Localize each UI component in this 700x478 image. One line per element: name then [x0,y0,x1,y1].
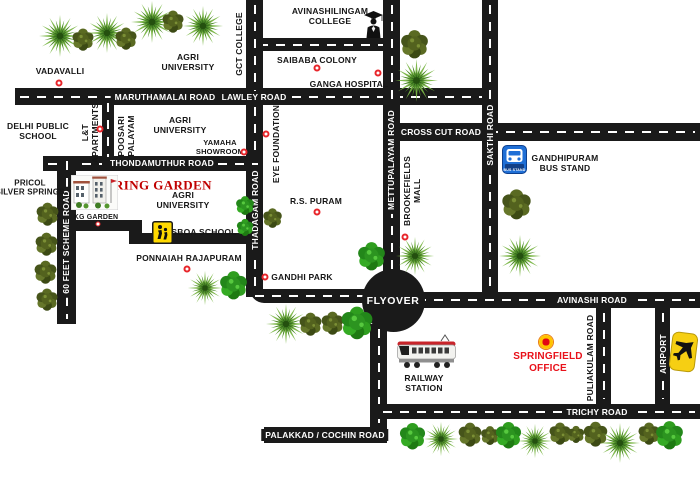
lnt-apartments-marker [97,126,104,133]
poosari-palayam-label: POOSARI PALAYAM [116,115,136,156]
cross-cut-road-label: CROSS CUT ROAD [397,126,485,138]
brookefields-mall-marker [402,234,409,241]
road-dashes [259,44,395,46]
agri-university-mid-label: AGRI UNIVERSITY [153,115,206,135]
lnt-apartments-label: L&T APARTMENTS [80,103,100,163]
mettupalayam-road-label: METTUPALAYAM ROAD [385,106,397,214]
palakkad-cochin-road-label: PALAKKAD / COCHIN ROAD [261,429,388,441]
lawley-road-label: LAWLEY ROAD [218,91,291,103]
sakthi-road-label: SAKTHI ROAD [484,100,496,169]
tree-icon [261,206,284,229]
springfield-office-marker [539,335,553,349]
eye-foundation-label: EYE FOUNDATION [271,105,281,183]
railway-station-road [370,324,387,443]
road-dashes [603,313,605,399]
tree-icon [32,258,59,285]
saibaba-colony-label: SAIBABA COLONY [277,55,357,65]
yamaha-showroom-label: YAMAHA SHOWROOM [196,139,244,157]
tree-icon [499,186,534,221]
rs-puram-marker [314,209,321,216]
avinashi-road-label: AVINASHI ROAD [553,294,631,306]
tree-icon [355,239,388,272]
gandhipuram-bus-stand-label: GANDHIPURAM BUS STAND [532,153,599,173]
tree-icon [217,268,250,301]
tree-icon [234,194,256,216]
tree-icon [33,230,60,257]
puliakulam-road [596,308,611,404]
gandhi-park-marker [262,274,269,281]
road-dashes [107,103,109,161]
ponnaiah-rajapuram-marker [184,266,191,273]
puliakulam-road-label: PULIAKULAM ROAD [585,315,595,402]
avinashilingam-college-road [254,38,400,51]
ganga-hospital-marker [375,70,382,77]
school-crossing-icon [152,221,173,244]
railway-station-label: RAILWAY STATION [404,373,443,393]
road-dashes [378,329,380,438]
airport-road-label: AIRPORT [657,330,669,378]
ganga-hospital-label: GANGA HOSPITAL [310,79,389,89]
yamaha-showroom-marker [241,149,248,156]
kg-garden-marker [96,222,101,227]
tree-icon [182,5,224,47]
gct-college-label: GCT COLLEGE [234,12,244,76]
tree-icon [423,421,459,457]
spring-garden-photo [71,175,118,210]
maruthamalai-road-label: MARUTHAMALAI ROAD [111,91,220,103]
delhi-public-school-label: DELHI PUBLIC SCHOOL [7,121,69,141]
tree-icon [235,217,255,237]
tree-icon [395,236,435,276]
tree-icon [34,286,60,312]
tree-icon [653,418,686,451]
sboa-school-label: SBOA SCHOOL [171,227,236,237]
vadavalli-label: VADAVALLI [36,66,85,76]
pricol-silver-springs-label: PRICOL SILVER SPRINGS [0,179,65,198]
airplane-icon [669,330,699,375]
tree-icon [34,200,61,227]
saibaba-colony-marker [314,65,321,72]
trichy-road [378,404,700,419]
map-stage: MARUTHAMALAI ROADLAWLEY ROADCROSS CUT RO… [0,0,700,478]
brookefields-mall-label: BROOKEFIELDS MALL [402,156,422,226]
spring-garden-location-map: MARUTHAMALAI ROADLAWLEY ROADCROSS CUT RO… [0,0,700,478]
bus-stand-icon-label: BUS STAND [502,168,527,172]
lnt-apartments-road [102,98,114,166]
graduate-icon [363,11,384,38]
thondamuthur-road-label: THONDAMUTHUR ROAD [106,157,218,169]
tree-icon [394,58,439,103]
train-icon [396,333,457,370]
eye-foundation-marker [263,131,270,138]
vadavalli-marker [56,80,63,87]
tree-icon [599,422,641,464]
gandhi-park-road [250,289,370,303]
tree-icon [498,234,542,278]
trichy-road-label: TRICHY ROAD [562,406,631,418]
rs-puram-label: R.S. PURAM [290,196,342,206]
avinashilingam-college-label: AVINASHILINGAM COLLEGE [292,6,368,26]
road-dashes [383,411,695,413]
ponnaiah-rajapuram-label: PONNAIAH RAJAPURAM [136,253,242,263]
agri-university-south-label: AGRI UNIVERSITY [156,190,209,210]
gandhi-park-label: GANDHI PARK [271,272,333,282]
tree-icon [338,303,376,341]
bus-stand-icon: BUS STAND [502,145,527,174]
springfield-office-label: SPRINGFIELD OFFICE [513,351,582,375]
agri-university-north-label: AGRI UNIVERSITY [161,52,214,72]
road-dashes [255,295,365,297]
tree-icon [398,27,431,60]
